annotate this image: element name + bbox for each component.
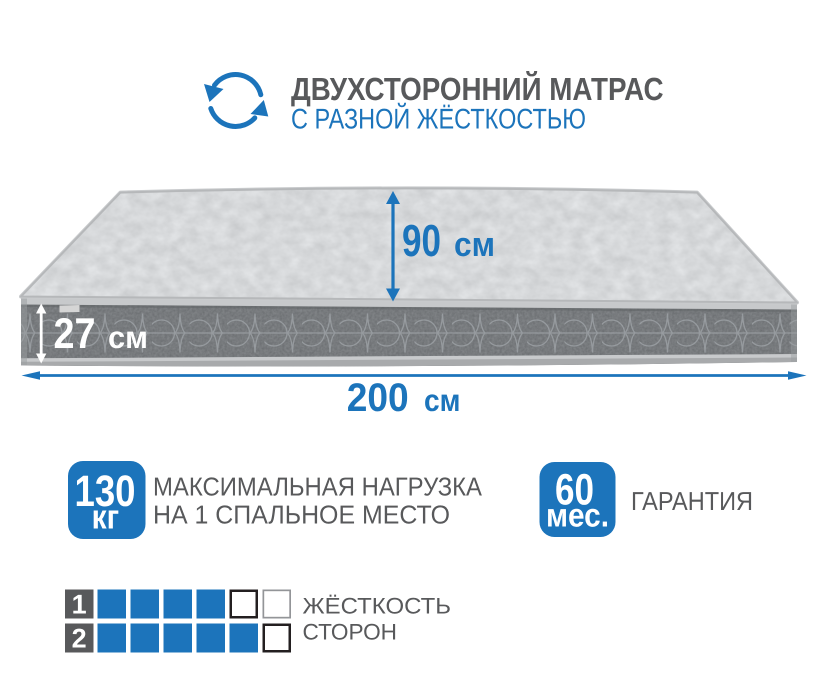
svg-text:см: см [454, 226, 495, 264]
svg-text:НА 1 СПАЛЬНОЕ МЕСТО: НА 1 СПАЛЬНОЕ МЕСТО [153, 500, 450, 530]
svg-text:2: 2 [72, 623, 87, 653]
svg-text:С РАЗНОЙ ЖЁСТКОСТЬЮ: С РАЗНОЙ ЖЁСТКОСТЬЮ [291, 103, 586, 136]
svg-text:1: 1 [72, 589, 87, 619]
svg-text:ГАРАНТИЯ: ГАРАНТИЯ [631, 486, 753, 516]
svg-text:ДВУХСТОРОННИЙ МАТРАС: ДВУХСТОРОННИЙ МАТРАС [291, 71, 664, 107]
svg-text:кг: кг [92, 498, 120, 536]
svg-text:см: см [108, 320, 148, 355]
svg-text:см: см [424, 383, 461, 418]
svg-text:200: 200 [347, 376, 409, 420]
svg-text:90: 90 [402, 215, 441, 266]
svg-text:ЖЁСТКОСТЬ: ЖЁСТКОСТЬ [303, 594, 452, 619]
svg-text:мес.: мес. [546, 496, 609, 533]
svg-text:МАКСИМАЛЬНАЯ НАГРУЗКА: МАКСИМАЛЬНАЯ НАГРУЗКА [153, 472, 483, 502]
svg-text:СТОРОН: СТОРОН [303, 620, 398, 645]
svg-text:27: 27 [54, 310, 96, 358]
